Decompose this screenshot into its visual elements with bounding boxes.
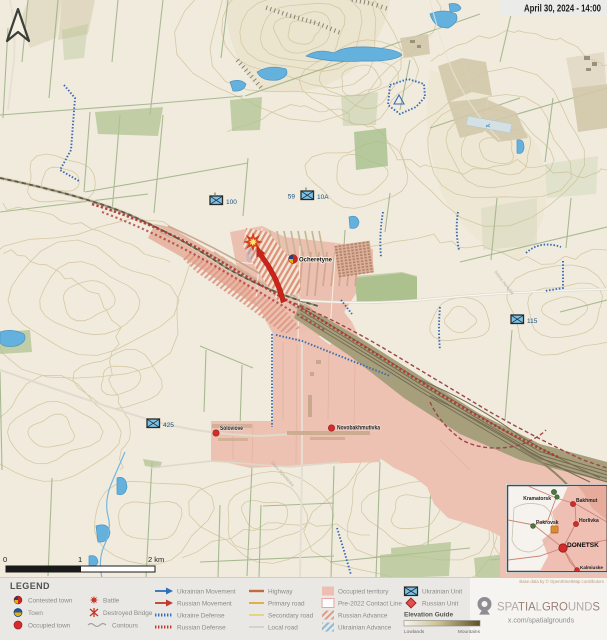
svg-text:Base data by © OpenStreetMap c: Base data by © OpenStreetMap contributor… <box>519 579 604 584</box>
svg-text:Occupied town: Occupied town <box>28 623 71 630</box>
svg-text:Ukrainian Advance: Ukrainian Advance <box>338 625 392 632</box>
svg-text:Elevation Guide: Elevation Guide <box>404 612 454 619</box>
svg-text:Ukrainian Movement: Ukrainian Movement <box>177 589 236 596</box>
svg-text:0: 0 <box>3 555 7 564</box>
svg-text:Contours: Contours <box>112 623 138 630</box>
svg-text:Local road: Local road <box>268 625 298 632</box>
svg-text:Kalmiuske: Kalmiuske <box>580 565 603 570</box>
svg-text:Soloviove: Soloviove <box>220 426 244 432</box>
svg-text:Bakhmut: Bakhmut <box>576 498 598 504</box>
svg-text:April 30, 2024 - 14:00: April 30, 2024 - 14:00 <box>524 4 601 15</box>
svg-text:Ukraine Defense: Ukraine Defense <box>177 613 225 620</box>
svg-text:100: 100 <box>226 199 237 206</box>
svg-text:Ocheretyne: Ocheretyne <box>299 257 332 264</box>
svg-text:Pre-2022 Contact Line: Pre-2022 Contact Line <box>338 601 402 608</box>
svg-text:Kramatorsk: Kramatorsk <box>523 496 551 502</box>
svg-text:Lowlands: Lowlands <box>404 629 425 635</box>
svg-text:59: 59 <box>288 194 296 201</box>
svg-text:II: II <box>305 187 307 191</box>
svg-text:115: 115 <box>527 318 538 325</box>
svg-text:Novobakhmutivka: Novobakhmutivka <box>337 426 381 432</box>
svg-text:Primary road: Primary road <box>268 601 305 608</box>
svg-text:II: II <box>214 192 216 196</box>
svg-text:Horlivka: Horlivka <box>579 518 599 524</box>
svg-text:Occupied territory: Occupied territory <box>338 589 389 596</box>
svg-text:Russian Defense: Russian Defense <box>177 625 226 632</box>
svg-text:Secondary road: Secondary road <box>268 613 314 620</box>
svg-text:x.com/spatialgrounds: x.com/spatialgrounds <box>508 618 575 625</box>
svg-text:SPATIALGROUNDS: SPATIALGROUNDS <box>497 600 600 614</box>
svg-text:Highway: Highway <box>268 589 293 596</box>
svg-text:425: 425 <box>163 422 174 429</box>
svg-text:Battle: Battle <box>103 598 120 605</box>
svg-text:Ukrainian Unit: Ukrainian Unit <box>422 589 462 596</box>
svg-text:Contested town: Contested town <box>28 598 73 605</box>
svg-text:LEGEND: LEGEND <box>10 581 50 591</box>
svg-text:Mountains: Mountains <box>458 629 481 635</box>
svg-text:Russian Movement: Russian Movement <box>177 601 232 608</box>
svg-text:Russian Unit: Russian Unit <box>422 601 458 608</box>
svg-text:Russian Advance: Russian Advance <box>338 613 388 620</box>
svg-text:DONETSK: DONETSK <box>567 542 599 549</box>
svg-text:2 km: 2 km <box>148 555 164 564</box>
svg-text:Destroyed Bridge: Destroyed Bridge <box>103 610 153 617</box>
svg-text:Pokrovsk: Pokrovsk <box>536 520 559 526</box>
svg-text:Town: Town <box>28 610 43 617</box>
svg-text:10A: 10A <box>317 194 329 201</box>
svg-text:1: 1 <box>78 555 82 564</box>
